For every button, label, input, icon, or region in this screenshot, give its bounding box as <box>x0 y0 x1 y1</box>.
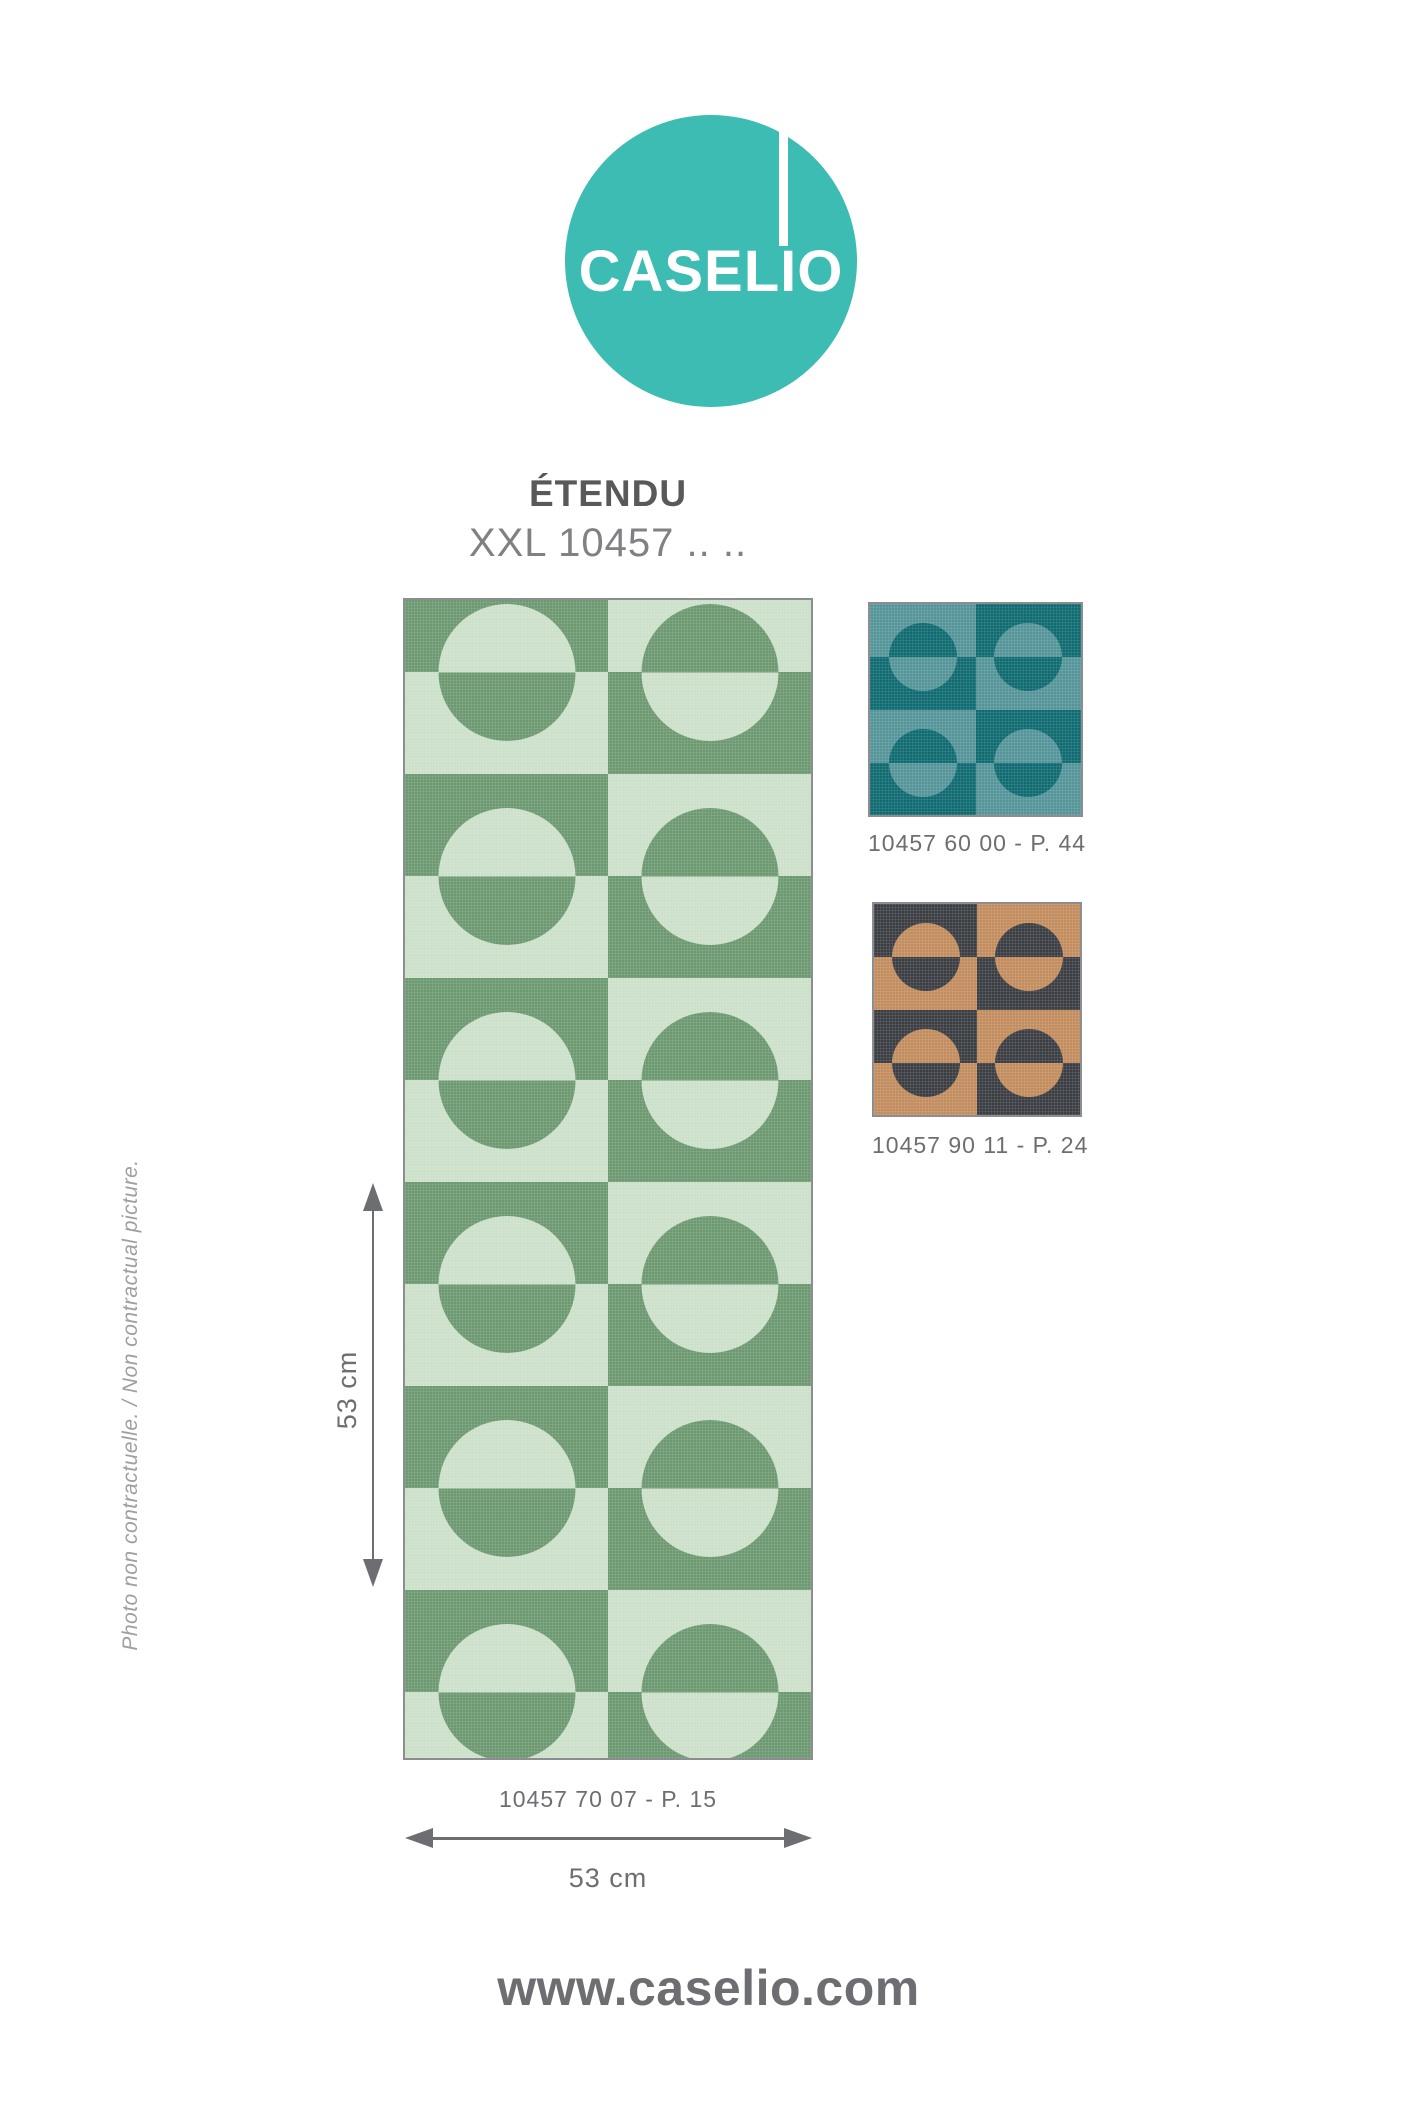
pattern-unit <box>874 904 977 1010</box>
pattern-circle <box>892 923 960 991</box>
pattern-circle <box>641 1624 778 1759</box>
pattern-unit <box>405 1182 608 1386</box>
pattern-unit <box>608 1386 811 1590</box>
pattern-circle <box>438 1420 575 1557</box>
pattern-circle <box>995 923 1063 991</box>
arrow-down-icon <box>363 1559 383 1587</box>
bronze-swatch-reference-label: 10457 90 11 - P. 24 <box>872 1130 1082 1160</box>
pattern-unit <box>870 710 976 815</box>
pattern-circle <box>641 604 778 741</box>
pattern-unit <box>608 774 811 978</box>
pattern-unit <box>405 978 608 1182</box>
arrow-right-icon <box>784 1828 812 1848</box>
pattern-circle <box>889 729 957 797</box>
teal-swatch-reference-label: 10457 60 00 - P. 44 <box>868 828 1083 858</box>
pattern-circle <box>641 808 778 945</box>
pattern-unit <box>976 604 1082 710</box>
height-dimension-arrow <box>363 1183 383 1587</box>
width-dimension-arrow <box>405 1828 812 1848</box>
main-swatch-reference-label: 10457 70 07 - P. 15 <box>403 1784 813 1814</box>
pattern-circle <box>889 623 957 691</box>
pattern-unit <box>608 1590 811 1758</box>
pattern-unit <box>976 710 1082 815</box>
wallpaper-pattern-column <box>870 604 976 815</box>
width-dimension-label: 53 cm <box>403 1862 813 1894</box>
pattern-circle <box>641 1012 778 1149</box>
non-contractual-disclaimer: Photo non contractuelle. / Non contractu… <box>117 1145 145 1665</box>
pattern-unit <box>870 604 976 710</box>
pattern-unit <box>874 1010 977 1115</box>
pattern-unit <box>977 904 1080 1010</box>
pattern-circle <box>892 1029 960 1097</box>
pattern-unit <box>405 1386 608 1590</box>
pattern-unit <box>405 600 608 774</box>
website-url[interactable]: www.caselio.com <box>0 1960 1417 2016</box>
pattern-circle <box>438 808 575 945</box>
dimension-line <box>429 1837 788 1840</box>
variant-swatch-bronze <box>872 902 1082 1117</box>
wallpaper-pattern-column <box>608 600 811 1758</box>
pattern-unit <box>608 1182 811 1386</box>
height-dimension-label: 53 cm <box>333 1340 361 1440</box>
pattern-unit <box>405 774 608 978</box>
pattern-unit <box>977 1010 1080 1115</box>
pattern-circle <box>994 623 1062 691</box>
product-sheet-page: CASELIO ÉTENDU XXL 10457 .. .. 10457 70 … <box>0 0 1417 2126</box>
caselio-logo-wordmark: CASELIO <box>561 234 861 309</box>
pattern-circle <box>994 729 1062 797</box>
variant-swatch-teal <box>868 602 1083 817</box>
pattern-circle <box>438 1624 575 1759</box>
pattern-circle <box>995 1029 1063 1097</box>
main-wallpaper-swatch <box>403 598 813 1760</box>
wallpaper-pattern-column <box>874 904 977 1115</box>
product-title: ÉTENDU <box>403 472 813 516</box>
pattern-unit <box>608 600 811 774</box>
pattern-unit <box>608 978 811 1182</box>
caselio-logo-i-stem <box>779 130 788 246</box>
pattern-circle <box>438 1216 575 1353</box>
wallpaper-pattern-column <box>976 604 1082 815</box>
wallpaper-pattern-column <box>405 600 608 1758</box>
product-reference: XXL 10457 .. .. <box>403 520 813 566</box>
pattern-circle <box>438 1012 575 1149</box>
wallpaper-pattern-column <box>977 904 1080 1115</box>
pattern-circle <box>641 1216 778 1353</box>
pattern-circle <box>641 1420 778 1557</box>
dimension-line <box>372 1207 374 1563</box>
pattern-unit <box>405 1590 608 1758</box>
pattern-circle <box>438 604 575 741</box>
